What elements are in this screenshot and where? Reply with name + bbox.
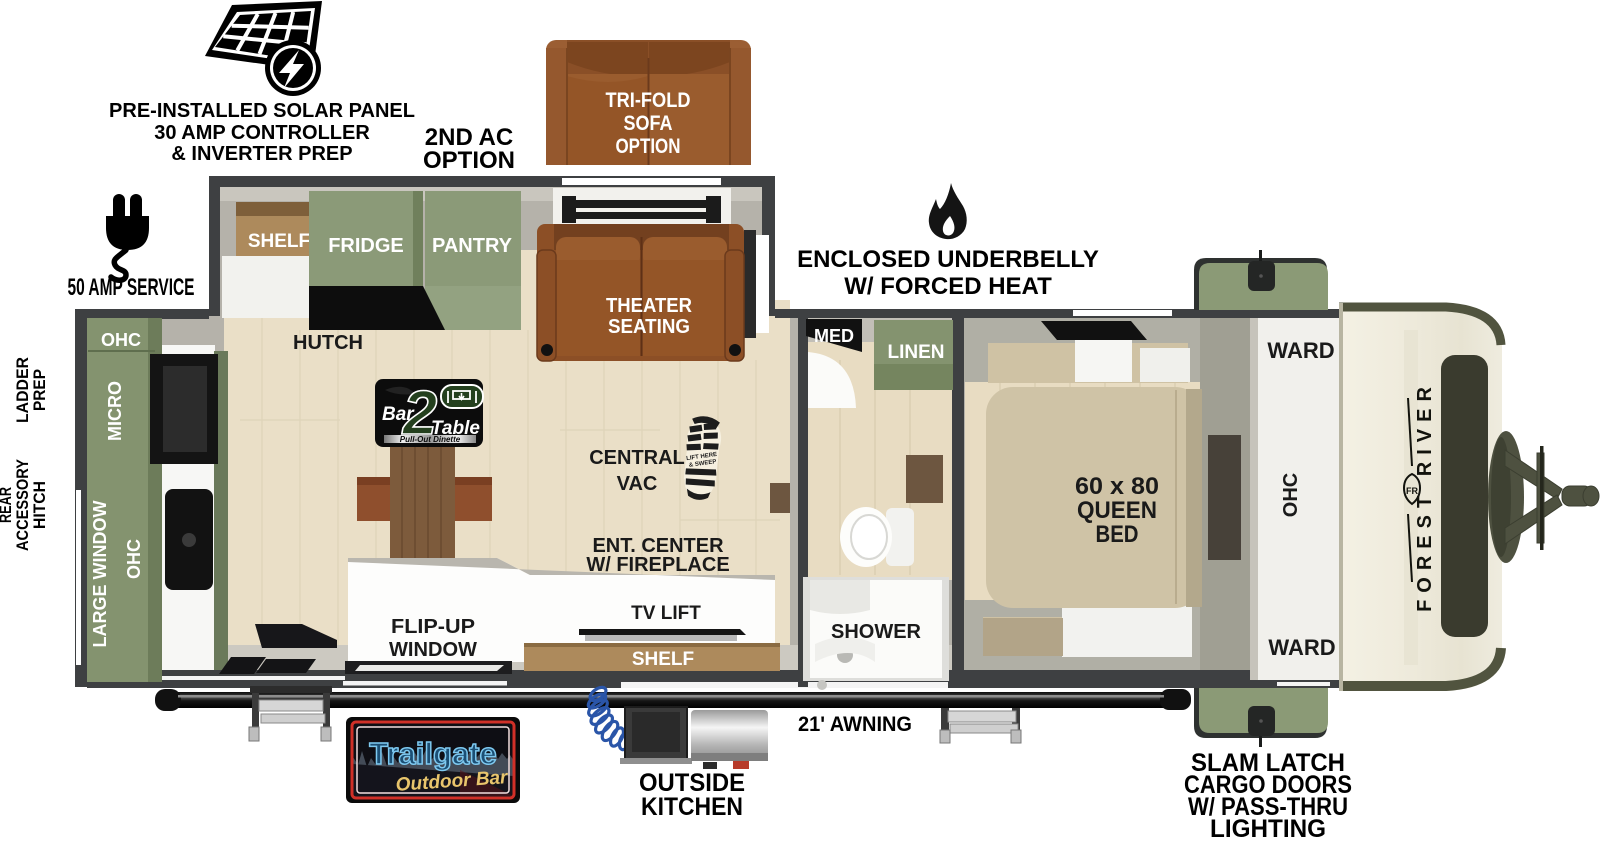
svg-text:BED: BED bbox=[1096, 521, 1139, 548]
svg-text:MICRO: MICRO bbox=[105, 381, 125, 441]
svg-text:LIGHTING: LIGHTING bbox=[1210, 815, 1326, 843]
svg-text:SHELF: SHELF bbox=[248, 231, 310, 252]
svg-text:OHC: OHC bbox=[124, 539, 144, 579]
svg-text:TV LIFT: TV LIFT bbox=[631, 603, 701, 624]
svg-text:SOFA: SOFA bbox=[624, 112, 673, 135]
svg-text:SHELF: SHELF bbox=[632, 649, 694, 670]
svg-text:THEATER: THEATER bbox=[606, 295, 693, 317]
svg-text:PREP: PREP bbox=[30, 369, 49, 411]
svg-text:W/ FORCED HEAT: W/ FORCED HEAT bbox=[844, 273, 1052, 300]
svg-text:WINDOW: WINDOW bbox=[389, 639, 477, 661]
svg-text:ENCLOSED UNDERBELLY: ENCLOSED UNDERBELLY bbox=[797, 246, 1099, 273]
svg-text:W/ FIREPLACE: W/ FIREPLACE bbox=[586, 554, 729, 576]
svg-text:CENTRAL: CENTRAL bbox=[589, 447, 685, 469]
svg-text:HITCH: HITCH bbox=[30, 481, 49, 529]
svg-text:OPTION: OPTION bbox=[616, 135, 681, 158]
svg-text:LINEN: LINEN bbox=[888, 342, 945, 363]
svg-text:WARD: WARD bbox=[1268, 635, 1335, 660]
svg-text:VAC: VAC bbox=[617, 473, 658, 495]
svg-text:21' AWNING: 21' AWNING bbox=[798, 713, 912, 736]
svg-text:QUEEN: QUEEN bbox=[1077, 497, 1157, 524]
svg-text:SHOWER: SHOWER bbox=[831, 621, 922, 643]
svg-text:OPTION: OPTION bbox=[423, 147, 515, 174]
svg-text:WARD: WARD bbox=[1267, 338, 1334, 363]
svg-text:Bar: Bar bbox=[382, 404, 415, 425]
svg-text:60 x 80: 60 x 80 bbox=[1075, 473, 1159, 500]
svg-text:OHC: OHC bbox=[1280, 473, 1302, 517]
svg-text:FRIDGE: FRIDGE bbox=[328, 235, 404, 257]
svg-text:MED: MED bbox=[814, 326, 854, 346]
svg-text:FLIP-UP: FLIP-UP bbox=[391, 616, 475, 638]
svg-text:Trailgate: Trailgate bbox=[369, 736, 497, 771]
svg-text:KITCHEN: KITCHEN bbox=[641, 793, 743, 821]
svg-text:PANTRY: PANTRY bbox=[432, 235, 513, 257]
svg-text:OHC: OHC bbox=[101, 330, 141, 350]
svg-text:LARGE WINDOW: LARGE WINDOW bbox=[90, 501, 110, 648]
svg-text:& INVERTER PREP: & INVERTER PREP bbox=[171, 143, 352, 165]
svg-text:HUTCH: HUTCH bbox=[293, 332, 363, 354]
svg-text:FOREST RIVER: FOREST RIVER bbox=[1414, 380, 1436, 612]
svg-text:TRI-FOLD: TRI-FOLD bbox=[606, 89, 691, 112]
svg-text:50 AMP SERVICE: 50 AMP SERVICE bbox=[68, 274, 195, 301]
svg-text:SEATING: SEATING bbox=[608, 316, 690, 338]
svg-text:Pull-Out Dinette: Pull-Out Dinette bbox=[400, 435, 461, 444]
svg-text:30 AMP CONTROLLER: 30 AMP CONTROLLER bbox=[154, 122, 370, 144]
svg-text:FR: FR bbox=[1406, 486, 1418, 496]
svg-text:PRE-INSTALLED SOLAR PANEL: PRE-INSTALLED SOLAR PANEL bbox=[109, 100, 415, 122]
